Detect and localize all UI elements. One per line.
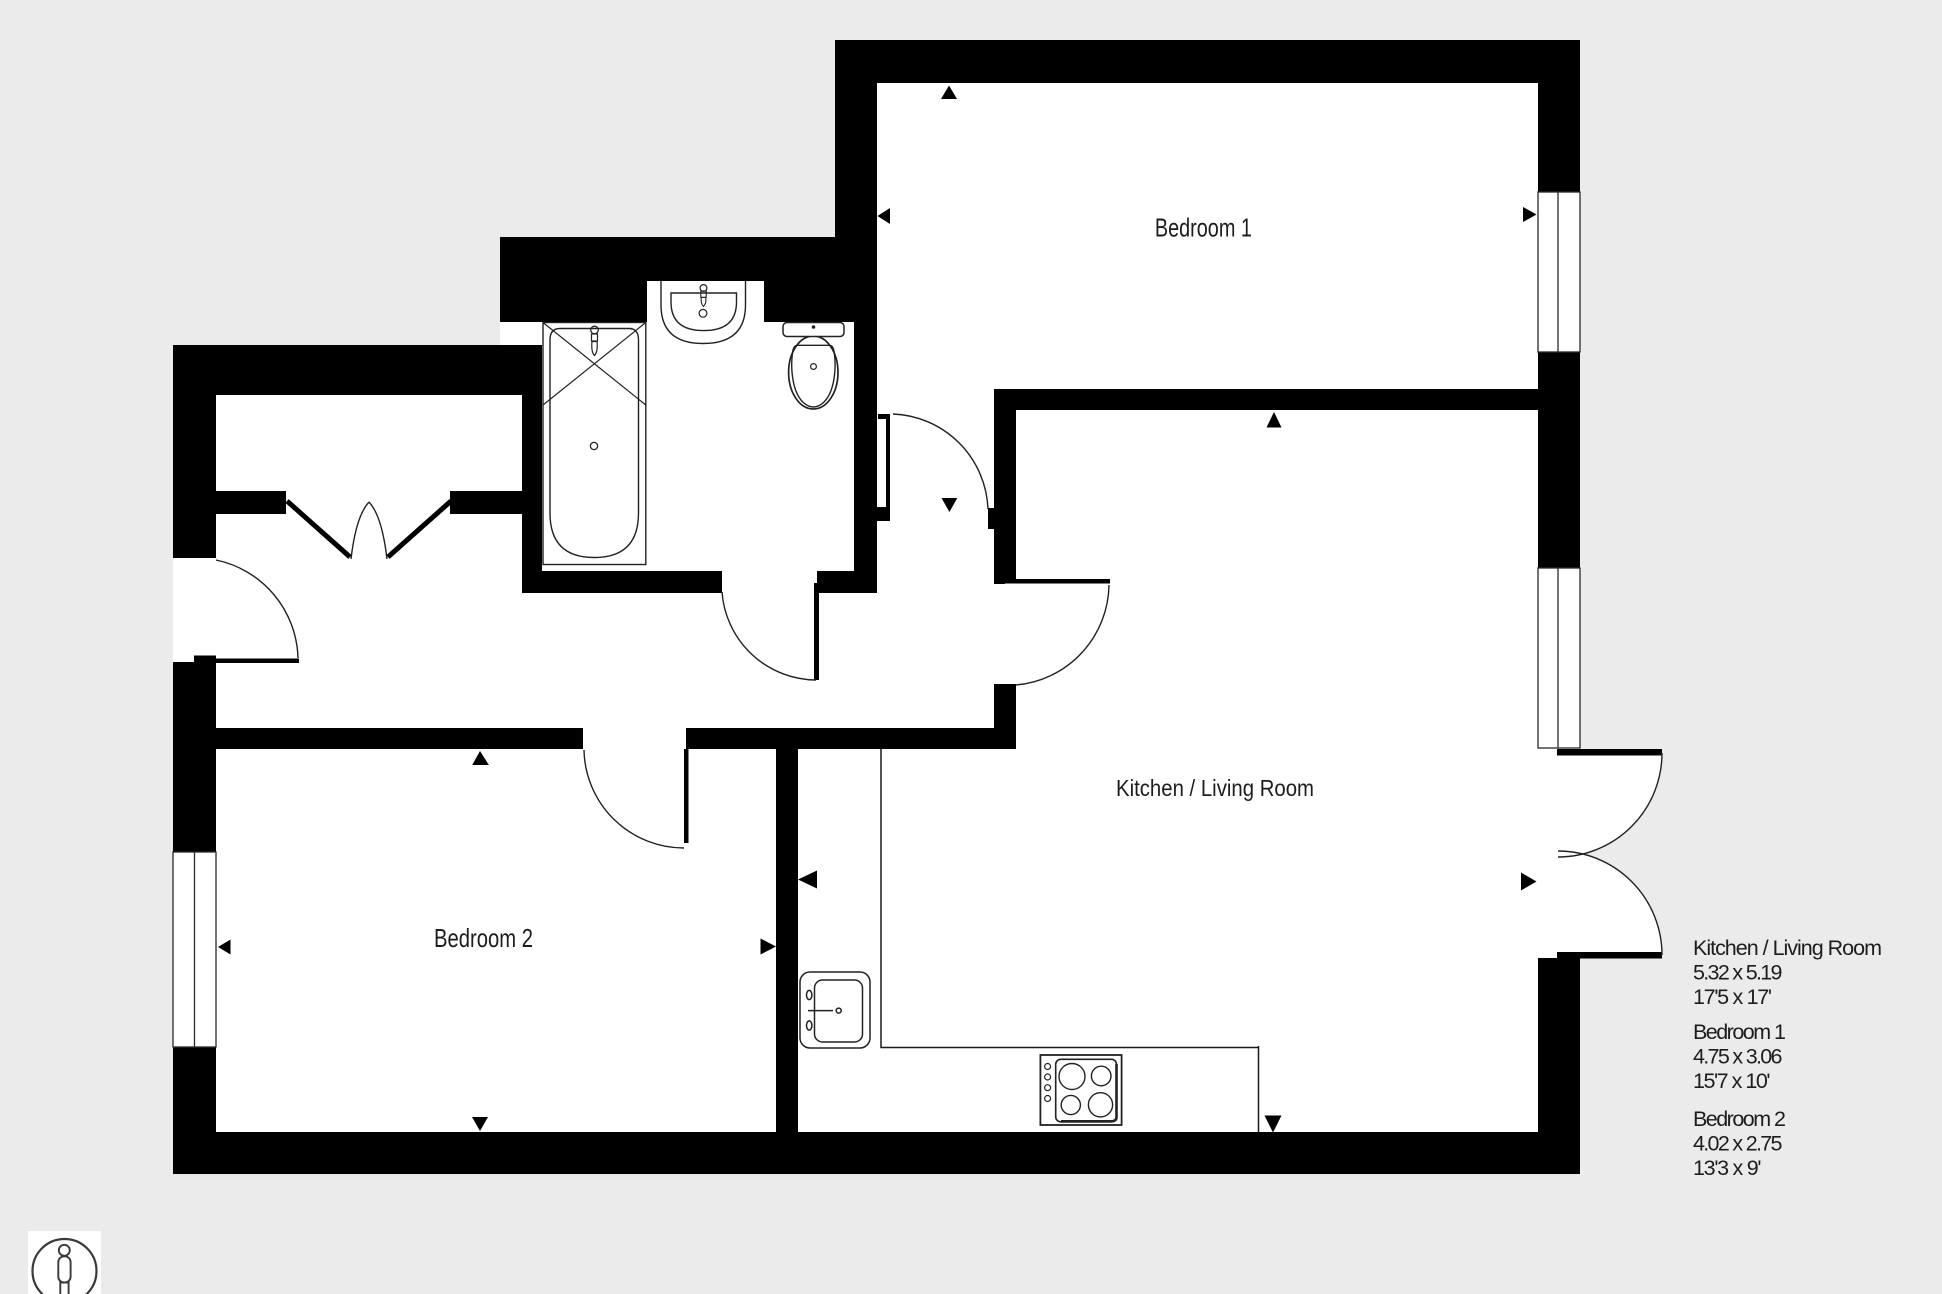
svg-text:Kitchen / Living Room: Kitchen / Living Room: [1693, 936, 1882, 960]
svg-text:17'5 x 17': 17'5 x 17': [1693, 985, 1772, 1009]
svg-text:Bedroom 2: Bedroom 2: [434, 923, 533, 953]
svg-text:13'3 x 9': 13'3 x 9': [1693, 1156, 1762, 1180]
svg-text:Bedroom 2: Bedroom 2: [1693, 1107, 1786, 1131]
svg-text:5.32 x 5.19: 5.32 x 5.19: [1693, 961, 1783, 985]
svg-text:Bedroom 1: Bedroom 1: [1155, 213, 1252, 243]
svg-text:4.02 x 2.75: 4.02 x 2.75: [1693, 1132, 1783, 1156]
svg-text:Bedroom 1: Bedroom 1: [1693, 1020, 1786, 1044]
svg-text:15'7 x 10': 15'7 x 10': [1693, 1069, 1771, 1093]
svg-text:Kitchen / Living Room: Kitchen / Living Room: [1116, 775, 1314, 801]
svg-text:4.75 x 3.06: 4.75 x 3.06: [1693, 1045, 1783, 1069]
